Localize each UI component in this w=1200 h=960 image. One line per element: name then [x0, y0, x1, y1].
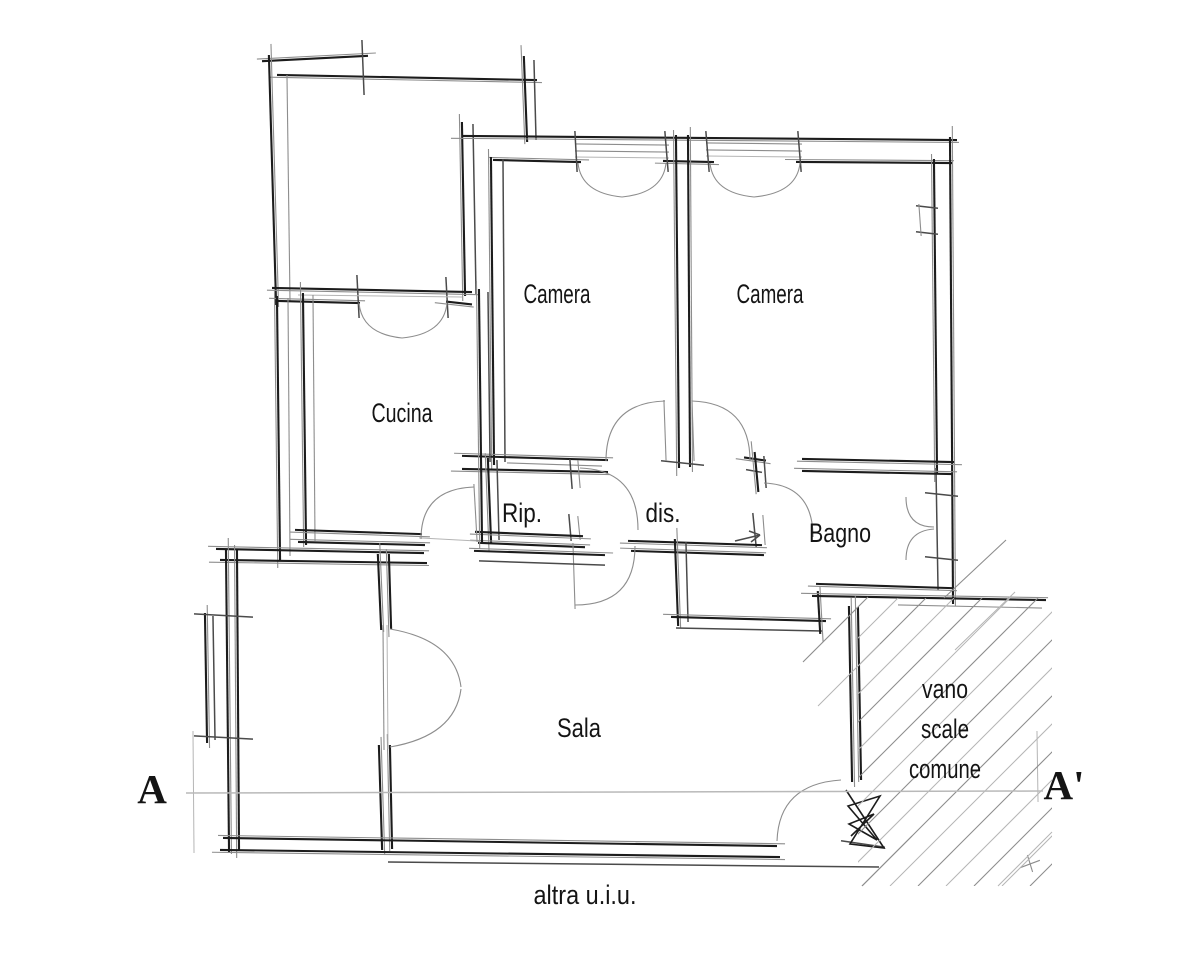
- stairwell-label-line2: scale: [921, 714, 969, 744]
- section-line: [186, 791, 1043, 793]
- stairwell-label-line1: vano: [922, 674, 968, 704]
- floor-plan-drawing: Camera Camera Cucina Rip. dis. Bagno Sal…: [0, 0, 1200, 960]
- stairwell-label-line3: comune: [909, 754, 981, 784]
- section-marker-a: A: [137, 766, 167, 812]
- section-marker-a-prime: A': [1044, 762, 1085, 808]
- footer-note-other-unit: altra u.i.u.: [534, 880, 637, 910]
- room-label-ripostiglio: Rip.: [502, 498, 542, 528]
- room-label-camera-left: Camera: [524, 279, 592, 309]
- room-label-camera-right: Camera: [737, 279, 805, 309]
- room-label-bagno: Bagno: [809, 518, 871, 548]
- stairwell-hatch-stray: [803, 540, 1052, 886]
- room-label-sala: Sala: [557, 713, 602, 743]
- room-label-cucina: Cucina: [372, 398, 434, 428]
- walls-layer: [193, 40, 1048, 872]
- floor-plan: Camera Camera Cucina Rip. dis. Bagno Sal…: [0, 0, 1200, 960]
- room-label-disimpegno: dis.: [646, 498, 681, 528]
